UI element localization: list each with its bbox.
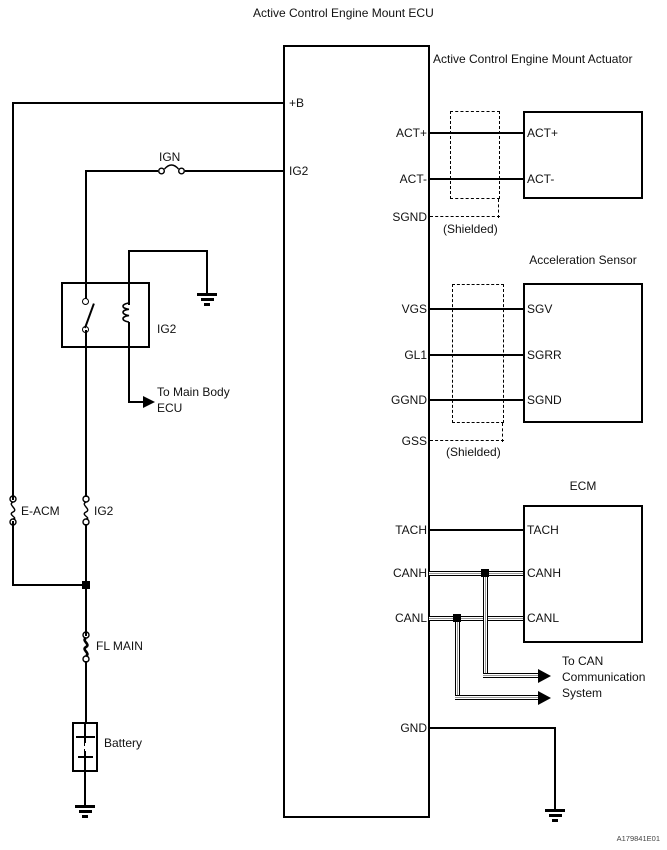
wire-coil-lower [128, 322, 130, 402]
wire-flmain-to-battery [85, 661, 87, 723]
ground-icon [197, 293, 217, 306]
ecm-pin-canh: CANH [527, 566, 561, 580]
wire-ig2-to-flmain [85, 524, 87, 636]
wire-coil-top [129, 250, 208, 252]
wire-ign-right [185, 170, 283, 172]
relay-coil-icon [121, 303, 137, 323]
ground-icon [75, 805, 95, 818]
junction-dot-canl [453, 614, 461, 622]
wire-ign-left [86, 170, 158, 172]
wire-to-main-body [128, 401, 144, 403]
fuse-label-eacm: E-ACM [21, 504, 60, 518]
wiring-diagram: Active Control Engine Mount ECU Active C… [0, 0, 667, 850]
wire-relay-ground [206, 250, 208, 294]
figure-code: A179841E01 [560, 834, 660, 843]
battery-lead-top [84, 722, 86, 736]
wire-vgs [430, 308, 523, 310]
ecu-pin-gl1: GL1 [340, 348, 427, 362]
ecu-pin-tach: TACH [340, 523, 427, 537]
battery-label: Battery [104, 736, 142, 750]
wire-sgnd-shield [430, 216, 500, 217]
wire-left-column-upper [12, 102, 14, 500]
ecu-pin-canl: CANL [340, 611, 427, 625]
ecm-pin-canl: CANL [527, 611, 559, 625]
fuse-label-flmain: FL MAIN [96, 639, 143, 653]
relay-switch-contact-icon [82, 298, 89, 305]
wire-canh-to-can-bus [483, 673, 538, 678]
ecu-pin-act-minus: ACT- [340, 172, 427, 186]
wire-gss-shield [430, 440, 504, 441]
wire-canl-branch [455, 616, 460, 700]
actuator-pin-act-minus: ACT- [527, 172, 554, 186]
wire-gnd [430, 727, 556, 729]
wire-left-column-lower [12, 521, 14, 586]
ecu-pin-act-plus: ACT+ [340, 126, 427, 140]
junction-dot-canh [481, 569, 489, 577]
sensor-title: Acceleration Sensor [523, 253, 643, 267]
fuse-label-ig2: IG2 [94, 504, 113, 518]
ecu-pin-sgnd: SGND [340, 210, 427, 224]
actuator-pin-act-plus: ACT+ [527, 126, 558, 140]
can-arrow-icon [538, 669, 551, 683]
wire-act-minus [430, 178, 523, 180]
wire-canl-to-can-bus [455, 695, 538, 700]
wire-act-plus [430, 132, 523, 134]
wire-gl1 [430, 354, 523, 356]
wire-tach [430, 529, 523, 531]
ecu-pin-ig2: IG2 [289, 164, 308, 178]
main-body-note-line2: ECU [157, 401, 182, 415]
wire-gnd-drop [554, 727, 556, 810]
shield-note-actuator: (Shielded) [443, 222, 498, 236]
wire-ign-to-relay [85, 170, 87, 282]
wire-ggnd [430, 399, 523, 401]
shield-note-sensor: (Shielded) [446, 445, 501, 459]
relay-label: IG2 [157, 322, 176, 336]
can-arrow-icon [538, 691, 551, 705]
ecm-pin-tach: TACH [527, 523, 559, 537]
ecu-pin-canh: CANH [340, 566, 427, 580]
sensor-pin-sgv: SGV [527, 302, 552, 316]
ecu-pin-b-plus: +B [289, 96, 304, 110]
ecu-box [283, 45, 430, 818]
can-note-line2: Communication [562, 670, 645, 684]
sensor-pin-sgnd: SGND [527, 393, 562, 407]
ecu-pin-vgs: VGS [340, 302, 427, 316]
wire-relay-to-ig2-fuse [85, 330, 87, 497]
wire-junction [13, 584, 88, 586]
ground-icon [545, 809, 565, 822]
ecu-pin-ggnd: GGND [340, 393, 427, 407]
main-body-arrow-icon [143, 396, 155, 408]
fuse-icon-eacm [6, 492, 20, 530]
diagram-title: Active Control Engine Mount ECU [253, 6, 434, 20]
wire-canh [429, 571, 523, 576]
wire-canl [429, 616, 523, 621]
shield-box-actuator [450, 111, 500, 199]
ecm-title: ECM [523, 479, 643, 493]
ecu-pin-gss: GSS [340, 434, 427, 448]
wire-canh-branch [483, 571, 488, 678]
can-note-line3: System [562, 686, 602, 700]
can-note-line1: To CAN [562, 654, 603, 668]
wire-battery-to-ground [84, 758, 86, 806]
ecu-pin-gnd: GND [340, 721, 427, 735]
actuator-title: Active Control Engine Mount Actuator [433, 52, 632, 66]
fuse-icon-ign [154, 162, 188, 176]
sensor-pin-sgrr: SGRR [527, 348, 562, 362]
main-body-note-line1: To Main Body [157, 385, 230, 399]
wire-coil-upper [128, 250, 130, 305]
wire-b-plus [13, 102, 284, 104]
